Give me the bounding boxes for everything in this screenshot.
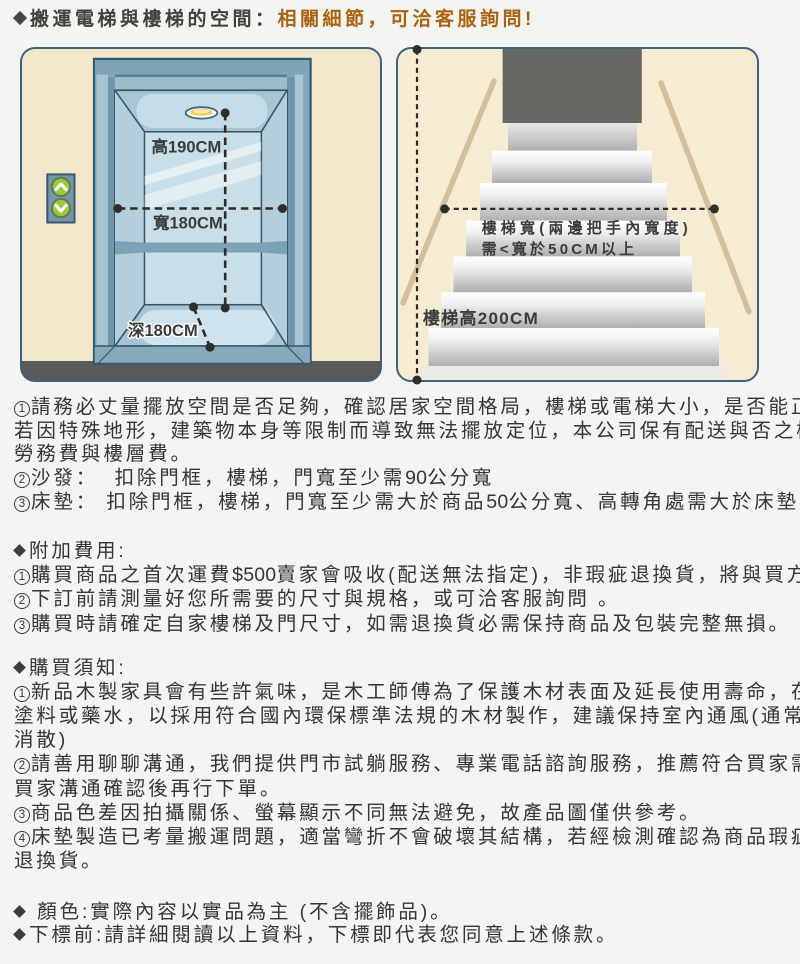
svg-text:寬180CM: 寬180CM — [152, 213, 223, 233]
svg-text:樓梯高200CM: 樓梯高200CM — [423, 308, 539, 328]
svg-text:深180CM: 深180CM — [128, 320, 198, 340]
svg-text:高190CM: 高190CM — [152, 137, 222, 157]
svg-text:需<寬於50CM以上: 需<寬於50CM以上 — [482, 240, 638, 258]
svg-text:樓梯寬(兩邊把手內寬度): 樓梯寬(兩邊把手內寬度) — [482, 219, 692, 237]
